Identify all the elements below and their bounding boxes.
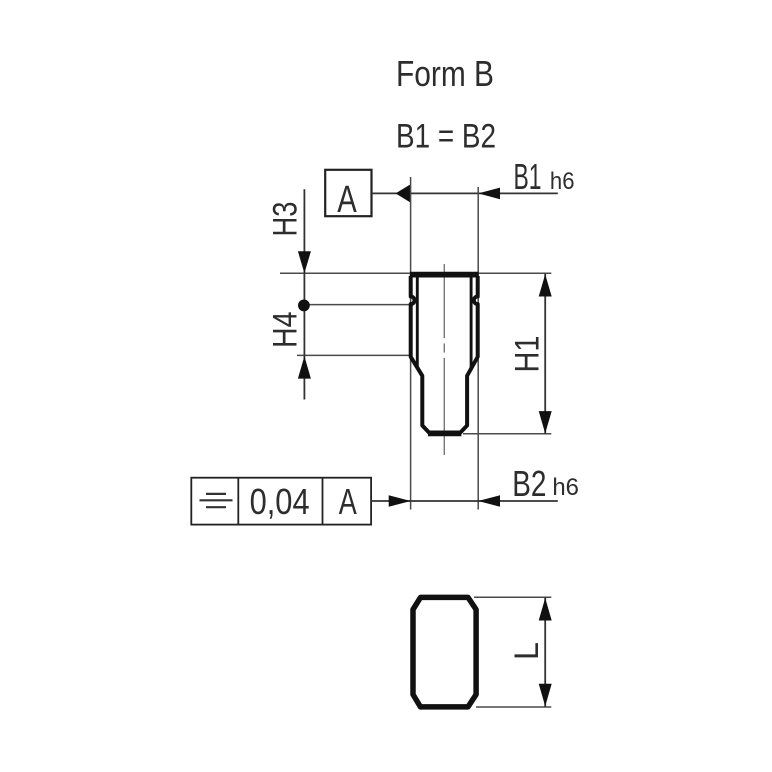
svg-text:h6: h6 xyxy=(550,168,575,195)
svg-text:A: A xyxy=(337,179,357,221)
svg-text:H1: H1 xyxy=(508,336,546,373)
svg-text:B1: B1 xyxy=(514,156,542,197)
svg-text:B1 = B2: B1 = B2 xyxy=(396,118,496,156)
svg-text:H3: H3 xyxy=(267,202,305,237)
svg-text:A: A xyxy=(339,481,357,522)
svg-text:h6: h6 xyxy=(552,474,579,501)
svg-text:0,04: 0,04 xyxy=(250,481,310,522)
svg-text:H4: H4 xyxy=(267,312,305,349)
svg-text:L: L xyxy=(508,642,546,660)
svg-text:B2: B2 xyxy=(512,463,546,504)
svg-text:Form B: Form B xyxy=(396,53,494,94)
